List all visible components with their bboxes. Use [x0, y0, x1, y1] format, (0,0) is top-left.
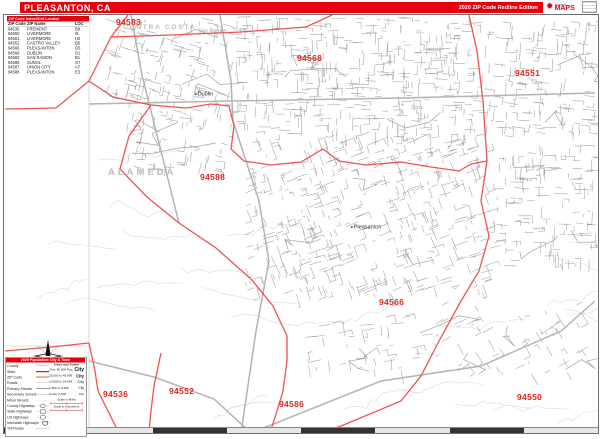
- street: [422, 84, 434, 89]
- legend-row: County Highways: [7, 403, 49, 409]
- street: [560, 231, 565, 235]
- street: [453, 184, 459, 186]
- street: [420, 182, 423, 190]
- street: [302, 216, 305, 217]
- street: [400, 18, 413, 22]
- street: [412, 152, 422, 155]
- street: [464, 109, 465, 116]
- zip-label: 94588: [200, 172, 225, 182]
- street: [180, 118, 191, 119]
- street: [488, 32, 489, 39]
- street: [434, 58, 448, 59]
- street: [403, 277, 405, 283]
- street: [390, 358, 392, 369]
- street: [324, 24, 331, 28]
- street: [217, 109, 219, 118]
- street: [511, 26, 512, 38]
- street: [387, 354, 397, 356]
- street: [534, 344, 540, 349]
- street: [136, 159, 145, 160]
- street: [432, 125, 439, 138]
- street: [425, 114, 428, 118]
- contour: [231, 315, 318, 326]
- street: [246, 204, 250, 206]
- street: [579, 351, 587, 357]
- street: [149, 92, 150, 96]
- street: [334, 77, 337, 88]
- street: [432, 230, 436, 240]
- street: [467, 264, 471, 274]
- street: [112, 93, 118, 95]
- street: [434, 287, 437, 297]
- street: [403, 316, 410, 317]
- street: [173, 87, 182, 97]
- street: [247, 288, 254, 290]
- street: [481, 277, 490, 280]
- street: [342, 256, 354, 261]
- street: [537, 132, 546, 133]
- street: [448, 149, 458, 152]
- street: [196, 42, 201, 43]
- contour: [37, 280, 90, 301]
- street: [529, 38, 533, 39]
- street: [459, 364, 462, 366]
- street: [273, 275, 275, 280]
- street: [551, 168, 562, 169]
- street: [328, 30, 339, 31]
- street: [131, 97, 136, 98]
- street: [521, 84, 525, 89]
- street: [156, 53, 162, 62]
- street: [555, 65, 560, 70]
- city-label: Dublin: [195, 91, 213, 97]
- street: [545, 370, 550, 373]
- street: [135, 130, 142, 143]
- street: [484, 265, 488, 267]
- logo-address-block: [582, 1, 597, 13]
- street: [372, 269, 373, 272]
- contour: [557, 403, 598, 424]
- street: [417, 157, 419, 161]
- street: [536, 98, 543, 103]
- legend-item-label: US Highways: [7, 415, 29, 420]
- street: [394, 263, 395, 266]
- street: [320, 267, 328, 271]
- street: [391, 157, 393, 162]
- street: [475, 306, 478, 311]
- street: [422, 334, 433, 335]
- street: [356, 136, 362, 150]
- street: [451, 139, 464, 145]
- street: [126, 90, 128, 98]
- map-page: PLEASANTON, CA 2020 ZIP Code Redline Edi…: [0, 0, 600, 439]
- street: [546, 54, 559, 55]
- street: [521, 222, 529, 224]
- street: [519, 316, 522, 321]
- street: [506, 67, 511, 80]
- street: [429, 188, 432, 198]
- map-canvas[interactable]: [4, 15, 598, 433]
- street: [530, 32, 534, 42]
- street: [374, 358, 376, 366]
- street: [384, 360, 395, 362]
- street: [162, 139, 167, 140]
- street: [188, 82, 189, 87]
- street: [327, 257, 337, 261]
- street: [198, 63, 209, 71]
- street: [443, 95, 454, 96]
- county-symbol: [36, 364, 49, 368]
- street: [373, 278, 376, 287]
- street: [159, 112, 163, 113]
- street: [262, 111, 265, 118]
- street: [380, 326, 382, 335]
- minor-symbol: [36, 398, 49, 402]
- street: [341, 190, 344, 199]
- legend-row: Interstate Highways: [7, 420, 49, 426]
- street: [425, 73, 437, 74]
- logo-star-icon: ✹: [546, 2, 554, 11]
- street: [514, 188, 524, 193]
- street: [535, 128, 545, 129]
- street: [149, 165, 155, 166]
- street: [133, 126, 142, 127]
- street: [216, 156, 224, 158]
- street: [358, 158, 369, 161]
- street: [544, 256, 554, 263]
- street: [463, 148, 465, 155]
- city-marker-icon: [351, 226, 353, 228]
- street: [576, 347, 588, 353]
- street: [442, 184, 447, 197]
- street: [460, 180, 464, 181]
- street: [393, 81, 405, 82]
- street: [510, 55, 517, 62]
- interstate-symbol: [39, 421, 52, 425]
- street: [199, 120, 204, 129]
- street: [354, 246, 358, 259]
- street: [454, 319, 466, 325]
- street: [448, 229, 451, 230]
- street: [488, 261, 500, 265]
- road: [575, 55, 598, 84]
- city-tier-row: Under 2,500City: [49, 391, 84, 397]
- zip-symbol: [36, 375, 49, 379]
- street: [316, 148, 318, 153]
- street: [220, 149, 221, 155]
- street: [407, 219, 410, 228]
- street: [429, 251, 434, 253]
- street: [409, 172, 420, 177]
- street: [471, 91, 478, 98]
- street: [332, 274, 340, 276]
- street: [326, 290, 328, 294]
- street: [346, 252, 353, 255]
- street: [364, 231, 367, 238]
- street: [316, 186, 327, 193]
- street: [189, 65, 192, 66]
- street: [161, 51, 168, 53]
- legend-item-label: Interstate Highways: [7, 421, 39, 426]
- brand-logo: ✹ Market MAPS: [546, 0, 598, 13]
- street: [563, 51, 567, 59]
- street: [302, 210, 303, 213]
- street: [309, 261, 321, 265]
- street: [417, 278, 429, 281]
- street: [130, 95, 135, 96]
- street: [307, 193, 317, 196]
- street: [516, 83, 527, 84]
- street: [532, 49, 533, 57]
- highway: [251, 301, 595, 433]
- street: [408, 284, 413, 295]
- state-symbol: [36, 370, 49, 374]
- street: [159, 86, 164, 96]
- street: [271, 128, 280, 129]
- street: [205, 43, 208, 44]
- street: [314, 205, 324, 208]
- street: [367, 146, 369, 154]
- street: [295, 174, 307, 178]
- street: [341, 200, 342, 203]
- street: [528, 153, 537, 154]
- street: [345, 259, 355, 264]
- street: [580, 259, 581, 270]
- street: [518, 120, 529, 121]
- street: [502, 63, 503, 66]
- street: [233, 102, 241, 111]
- street: [363, 117, 369, 124]
- street: [494, 64, 506, 65]
- county-label: ALAMEDA: [108, 167, 177, 178]
- neatline-segment: [153, 428, 227, 433]
- street: [401, 225, 402, 229]
- street: [403, 101, 412, 102]
- street: [563, 157, 574, 161]
- street: [524, 348, 531, 360]
- street: [250, 280, 251, 283]
- street: [300, 188, 306, 190]
- street: [586, 22, 588, 34]
- street: [452, 177, 458, 189]
- street: [264, 178, 272, 193]
- street: [367, 141, 377, 145]
- street: [579, 129, 580, 136]
- street: [337, 249, 341, 261]
- street: [379, 277, 381, 282]
- legend-scale-bars: Scale in MilesScale in Kilometers: [49, 398, 84, 411]
- street: [573, 212, 581, 213]
- contour-lines: [37, 151, 598, 424]
- street: [442, 155, 450, 159]
- street: [300, 278, 308, 285]
- street: [555, 255, 556, 268]
- street: [166, 75, 171, 83]
- street: [132, 113, 133, 121]
- street: [496, 367, 499, 373]
- street: [579, 233, 591, 234]
- zip-index-cell: PLEASANTON: [27, 70, 75, 75]
- street: [309, 366, 311, 378]
- street: [257, 55, 265, 62]
- street: [291, 45, 292, 59]
- street: [146, 50, 159, 52]
- street: [487, 109, 488, 118]
- street: [362, 330, 365, 344]
- city-tier-sample: City: [78, 386, 84, 390]
- street: [387, 135, 388, 147]
- street: [425, 147, 434, 150]
- street: [589, 133, 598, 137]
- street: [514, 89, 517, 99]
- street: [543, 127, 557, 128]
- title-bar: PLEASANTON, CA 2020 ZIP Code Redline Edi…: [20, 2, 543, 13]
- street: [338, 330, 353, 335]
- street: [329, 245, 338, 250]
- street: [427, 181, 429, 185]
- street: [394, 149, 400, 156]
- street: [238, 105, 247, 111]
- street: [349, 68, 358, 69]
- street: [254, 277, 263, 283]
- street: [488, 222, 495, 232]
- road: [359, 348, 380, 357]
- street: [411, 169, 412, 172]
- street: [139, 79, 142, 91]
- street: [489, 63, 490, 73]
- street: [152, 90, 160, 92]
- street: [465, 225, 467, 230]
- street: [573, 101, 584, 105]
- street: [540, 96, 541, 102]
- street: [523, 218, 530, 219]
- street: [313, 164, 317, 175]
- street: [571, 29, 576, 36]
- street: [169, 114, 173, 119]
- state-hwy-symbol: [36, 410, 49, 414]
- street: [259, 20, 271, 21]
- street: [567, 373, 572, 380]
- street: [336, 63, 337, 72]
- contour: [66, 298, 157, 311]
- neatline-segment: [375, 428, 449, 433]
- street: [267, 44, 269, 51]
- street: [442, 160, 443, 163]
- street: [396, 186, 399, 194]
- street: [438, 171, 442, 172]
- street: [484, 89, 494, 96]
- street: [322, 338, 324, 347]
- street: [266, 154, 267, 157]
- street: [417, 256, 420, 266]
- street: [578, 43, 589, 45]
- street: [434, 207, 437, 216]
- street: [432, 244, 444, 248]
- street: [499, 164, 500, 173]
- street: [382, 60, 389, 63]
- street: [462, 24, 470, 27]
- street: [351, 93, 361, 94]
- street: [436, 149, 441, 153]
- street: [219, 106, 220, 109]
- street: [321, 79, 326, 82]
- street: [297, 265, 301, 271]
- street: [256, 94, 257, 103]
- street: [454, 184, 464, 187]
- map-frame[interactable]: ZIP Code Index/Grid Locator ZIP CodeZIP …: [3, 14, 599, 434]
- zip-label: 94550: [517, 392, 542, 402]
- street: [160, 86, 161, 94]
- street: [242, 54, 245, 63]
- street: [573, 160, 580, 161]
- street: [145, 19, 146, 22]
- street: [465, 129, 475, 133]
- street: [279, 185, 282, 190]
- street: [379, 158, 384, 160]
- zip-index-cell: E3: [75, 70, 87, 75]
- street: [467, 119, 473, 127]
- street: [471, 324, 474, 326]
- street: [490, 189, 496, 192]
- street: [261, 174, 266, 183]
- legend-item-label: Secondary Streets: [7, 392, 37, 397]
- street: [475, 326, 480, 336]
- street: [542, 148, 543, 158]
- contour: [319, 305, 401, 324]
- street: [561, 349, 568, 354]
- street: [455, 115, 456, 126]
- street: [199, 22, 200, 26]
- street: [516, 365, 525, 369]
- street: [499, 233, 506, 236]
- street: [558, 224, 567, 230]
- street: [189, 44, 200, 53]
- street: [408, 204, 413, 214]
- street: [299, 38, 308, 39]
- street: [345, 223, 349, 225]
- street: [414, 66, 418, 75]
- street: [580, 125, 590, 131]
- street: [319, 324, 330, 326]
- street: [285, 189, 289, 190]
- street: [340, 363, 347, 364]
- street: [385, 126, 388, 138]
- street: [275, 19, 287, 21]
- street: [481, 270, 493, 273]
- street: [525, 315, 530, 317]
- street: [549, 59, 553, 72]
- street: [448, 174, 450, 179]
- street: [454, 220, 464, 223]
- road: [349, 358, 370, 371]
- street: [316, 367, 317, 371]
- street: [310, 239, 321, 244]
- contour: [564, 309, 598, 328]
- scale-bar: Scale in Kilometers: [49, 405, 84, 411]
- street: [117, 32, 118, 39]
- street: [563, 199, 569, 202]
- street: [406, 280, 412, 282]
- contour: [200, 286, 296, 304]
- street: [587, 212, 593, 224]
- street: [297, 220, 301, 222]
- street: [485, 195, 489, 205]
- street: [323, 268, 333, 272]
- street: [411, 106, 421, 114]
- street: [256, 138, 261, 151]
- street: [415, 135, 427, 139]
- street: [214, 106, 217, 114]
